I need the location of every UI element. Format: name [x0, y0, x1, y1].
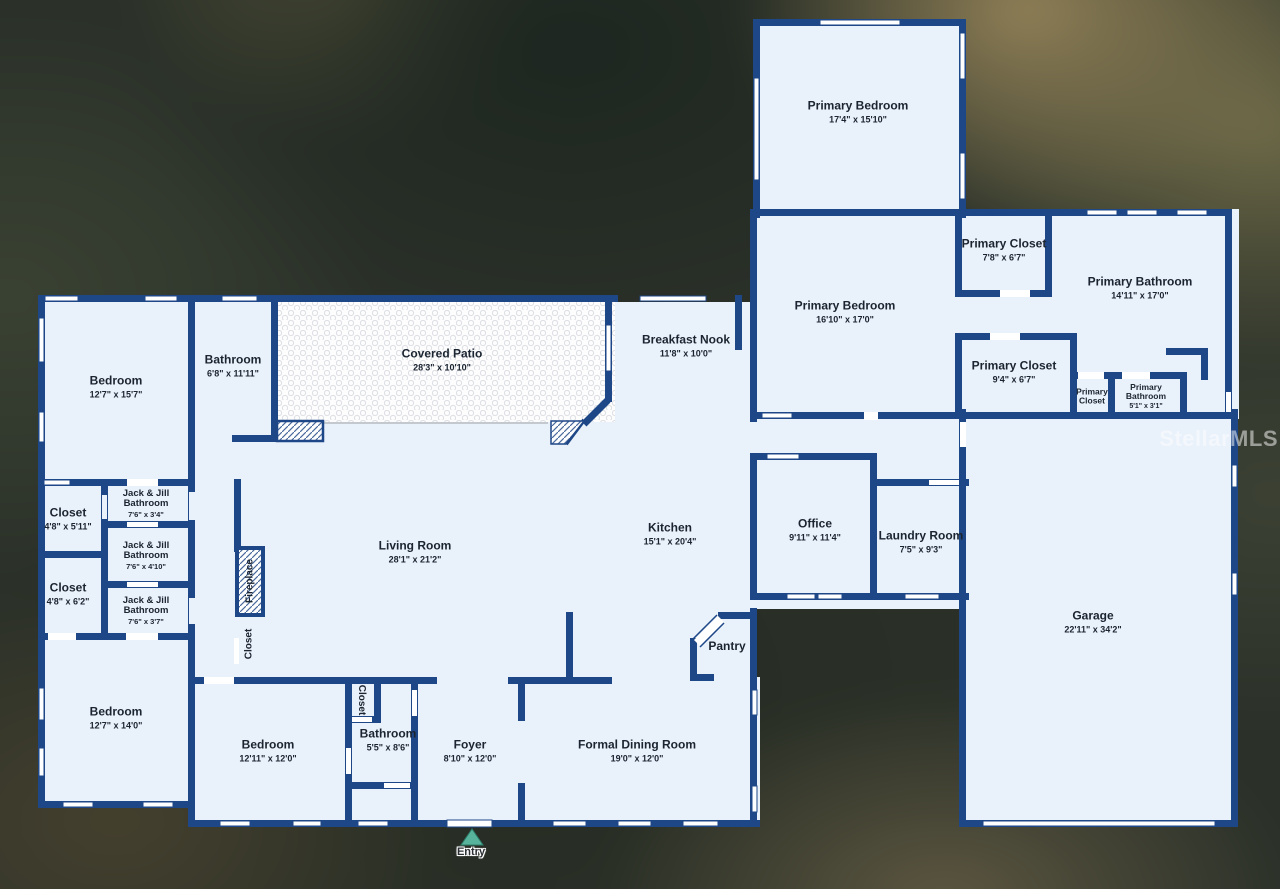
entry-arrow-icon [461, 829, 483, 845]
floorplan-screenshot: Primary Bedroom17'4" x 15'10"Primary Bed… [0, 0, 1280, 889]
floorplan-drawing [0, 0, 1280, 889]
stellar-mls-watermark: StellarMLS [1159, 426, 1278, 452]
covered-patio-tiles [275, 302, 615, 424]
entry-label: Entry [457, 846, 485, 858]
room-fills [38, 19, 1239, 827]
